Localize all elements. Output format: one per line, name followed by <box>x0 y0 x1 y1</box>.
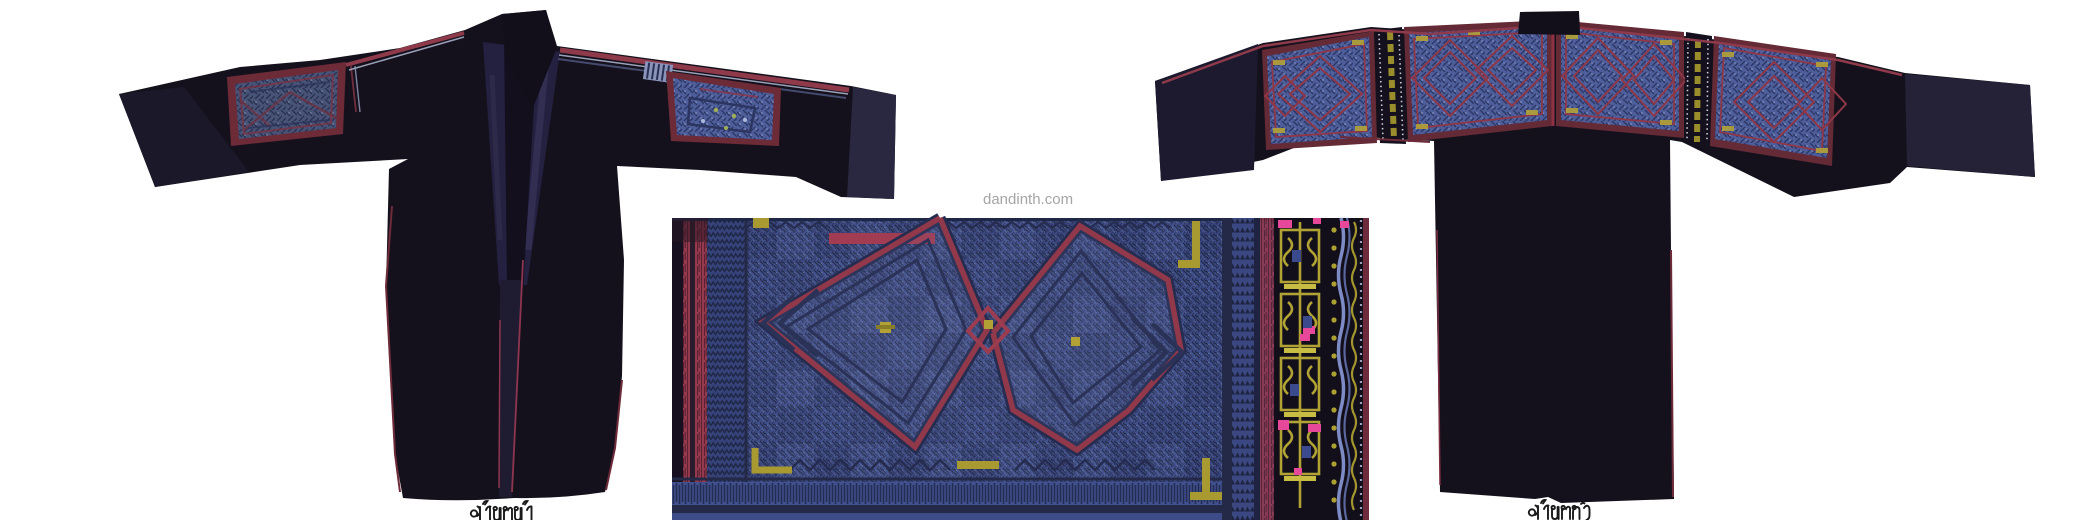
svg-text:dandinth.com: dandinth.com <box>983 191 1073 208</box>
